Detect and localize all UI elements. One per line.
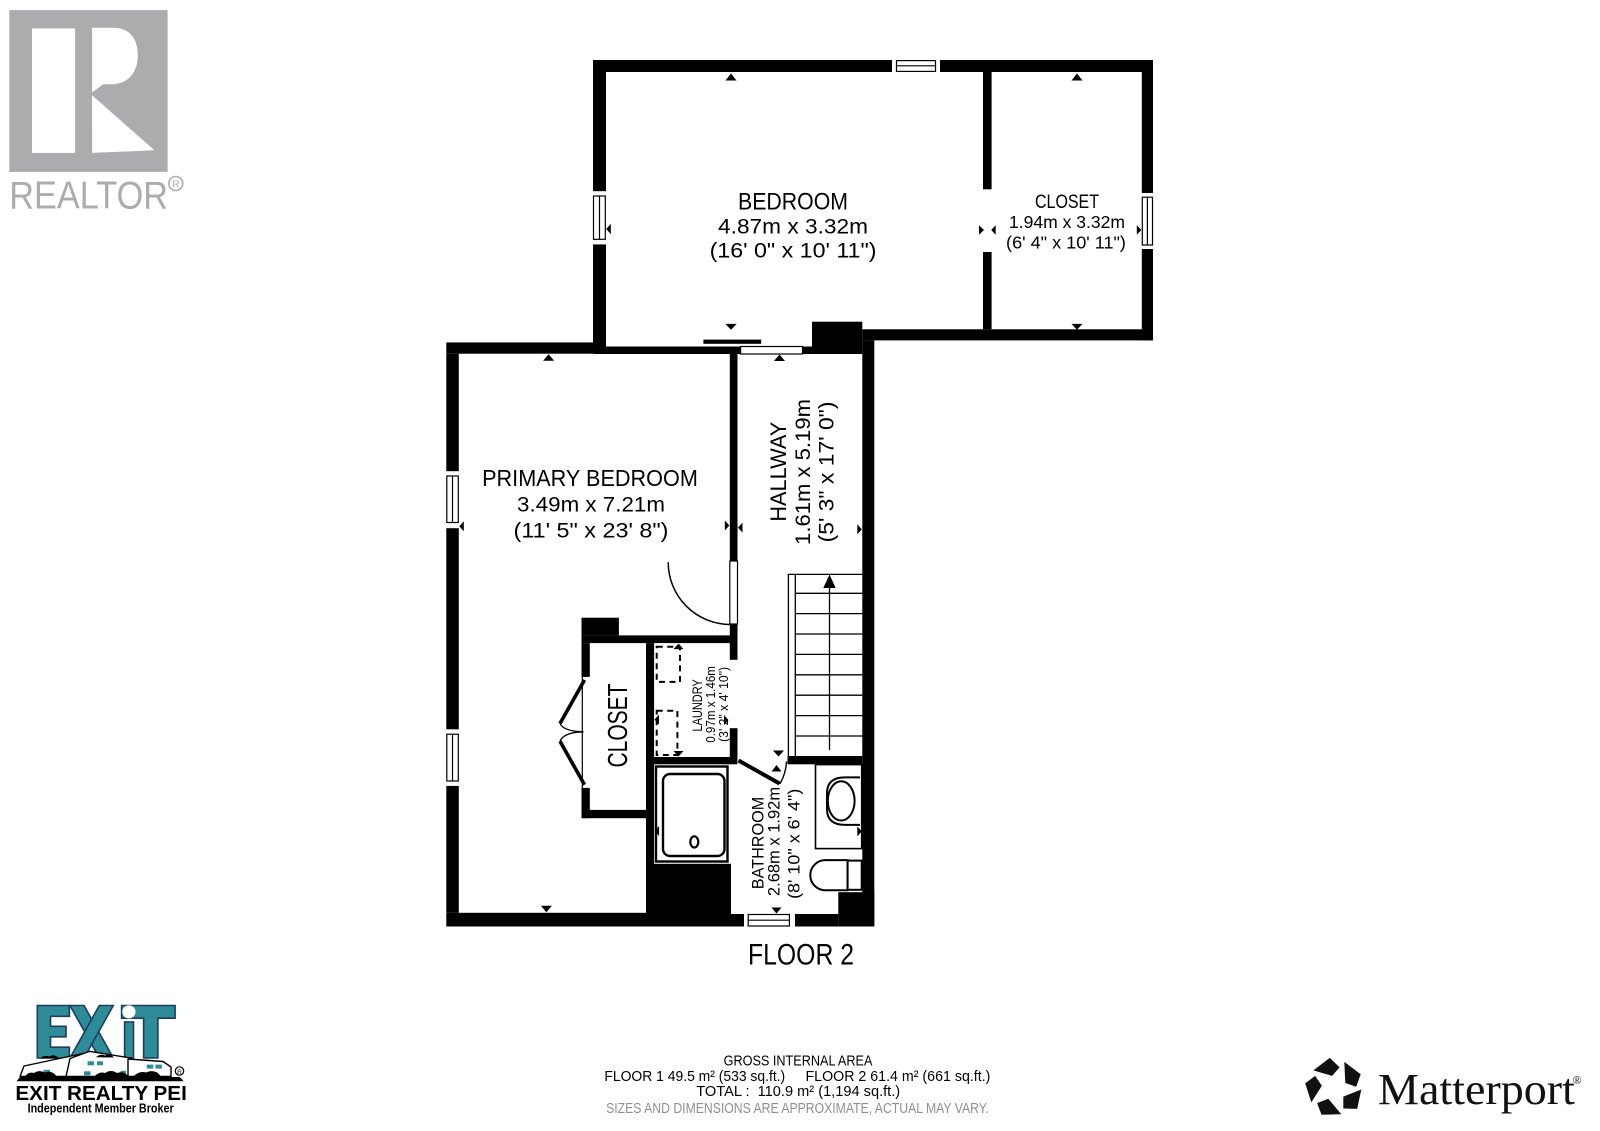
svg-text:(6' 4" x 10' 11"): (6' 4" x 10' 11") [1006, 233, 1126, 253]
svg-text:(8' 10" x 6' 4"): (8' 10" x 6' 4") [784, 789, 803, 899]
svg-text:®: ® [1572, 1073, 1581, 1087]
svg-text:1.94m x 3.32m: 1.94m x 3.32m [1009, 212, 1125, 232]
svg-text:R: R [172, 179, 180, 191]
svg-text:SIZES AND DIMENSIONS ARE APPRO: SIZES AND DIMENSIONS ARE APPROXIMATE, AC… [606, 1100, 989, 1116]
svg-text:FLOOR 1 49.5 m² (533 sq.ft.): FLOOR 1 49.5 m² (533 sq.ft.) [604, 1068, 785, 1085]
svg-text:(5' 3" x 17' 0"): (5' 3" x 17' 0") [814, 402, 838, 543]
svg-text:(16' 0" x 10' 11"): (16' 0" x 10' 11") [710, 239, 877, 263]
svg-text:GROSS INTERNAL AREA: GROSS INTERNAL AREA [724, 1051, 873, 1068]
svg-text:Independent Member Broker: Independent Member Broker [28, 1102, 174, 1116]
svg-text:FLOOR 2 61.4 m² (661 sq.ft.): FLOOR 2 61.4 m² (661 sq.ft.) [806, 1068, 991, 1084]
svg-text:CLOSET: CLOSET [603, 683, 633, 767]
svg-text:BEDROOM: BEDROOM [738, 187, 848, 215]
svg-text:(11' 5" x 23' 8"): (11' 5" x 23' 8") [514, 519, 669, 543]
svg-text:HALLWAY: HALLWAY [766, 422, 791, 522]
svg-text:FLOOR 2: FLOOR 2 [748, 937, 854, 971]
svg-text:4.87m x 3.32m: 4.87m x 3.32m [718, 214, 868, 238]
svg-text:R: R [177, 1069, 182, 1076]
svg-text:TOTAL : 110.9 m² (1,194 sq.ft: TOTAL : 110.9 m² (1,194 sq.ft.) [696, 1084, 900, 1100]
svg-text:Matterport: Matterport [1378, 1065, 1575, 1114]
svg-text:(3' 2" x 4' 10"): (3' 2" x 4' 10") [717, 667, 731, 742]
svg-text:1.61m x 5.19m: 1.61m x 5.19m [791, 399, 814, 545]
svg-text:CLOSET: CLOSET [1035, 191, 1099, 213]
svg-text:REALTOR: REALTOR [9, 173, 168, 217]
svg-text:3.49m x 7.21m: 3.49m x 7.21m [517, 492, 665, 516]
svg-text:2.68m x 1.92m: 2.68m x 1.92m [764, 787, 783, 896]
svg-text:PRIMARY BEDROOM: PRIMARY BEDROOM [482, 465, 698, 491]
